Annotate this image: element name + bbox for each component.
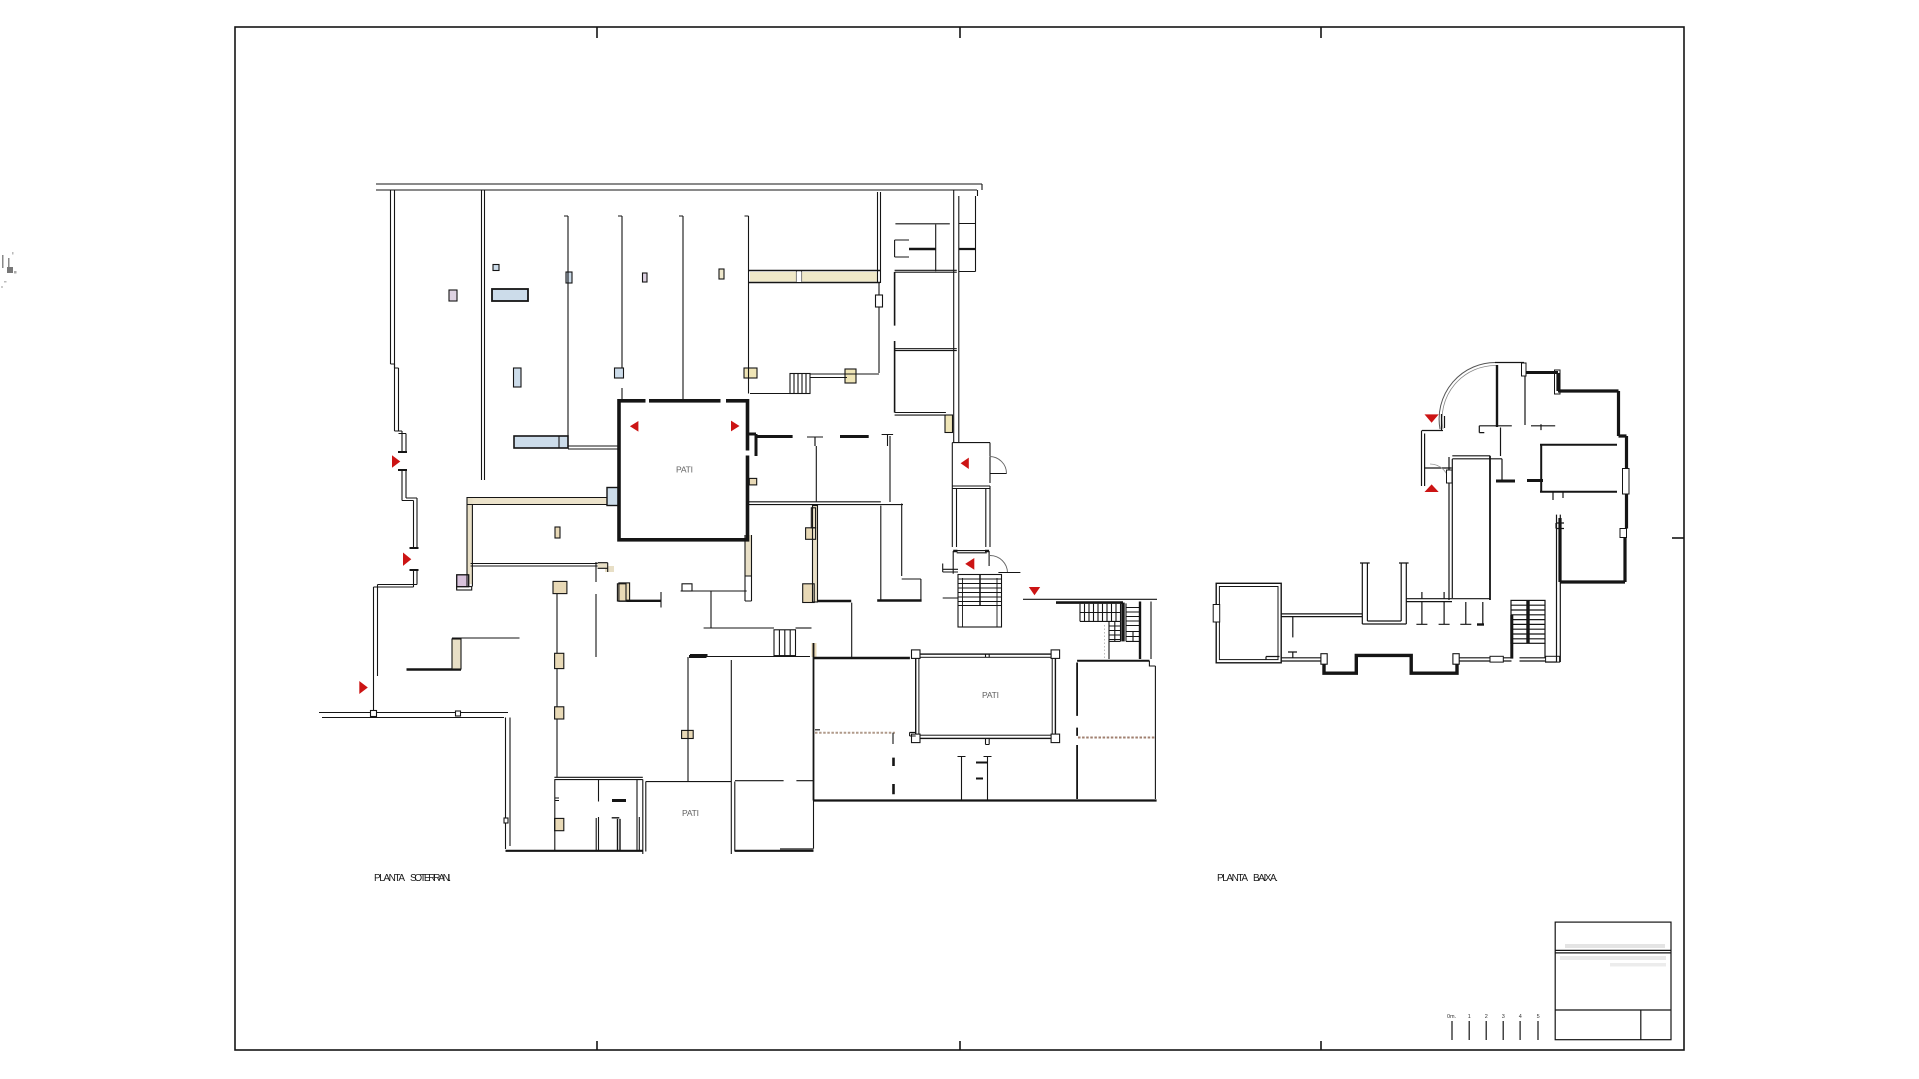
svg-text:4: 4 <box>1519 1014 1522 1020</box>
svg-text:BAIXA.: BAIXA. <box>1253 873 1278 884</box>
svg-text:2: 2 <box>1485 1014 1488 1020</box>
svg-text:SOTERRANI.: SOTERRANI. <box>410 873 451 884</box>
svg-text:PATI: PATI <box>676 465 693 475</box>
svg-text:1: 1 <box>1468 1014 1471 1020</box>
svg-text:PATI: PATI <box>682 808 699 818</box>
svg-text:5: 5 <box>1537 1014 1540 1020</box>
svg-text:3: 3 <box>1502 1014 1505 1020</box>
svg-text:PLANTA: PLANTA <box>374 873 405 884</box>
svg-text:0m.: 0m. <box>1447 1014 1457 1020</box>
svg-text:PLANTA: PLANTA <box>1217 873 1248 884</box>
svg-text:PATI: PATI <box>982 690 999 700</box>
